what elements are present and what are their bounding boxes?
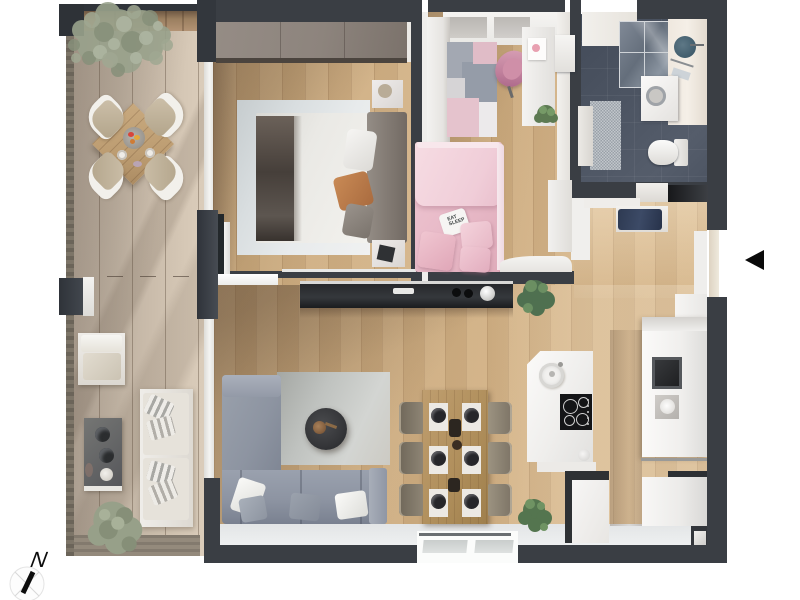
- svg-text:N: N: [29, 547, 50, 572]
